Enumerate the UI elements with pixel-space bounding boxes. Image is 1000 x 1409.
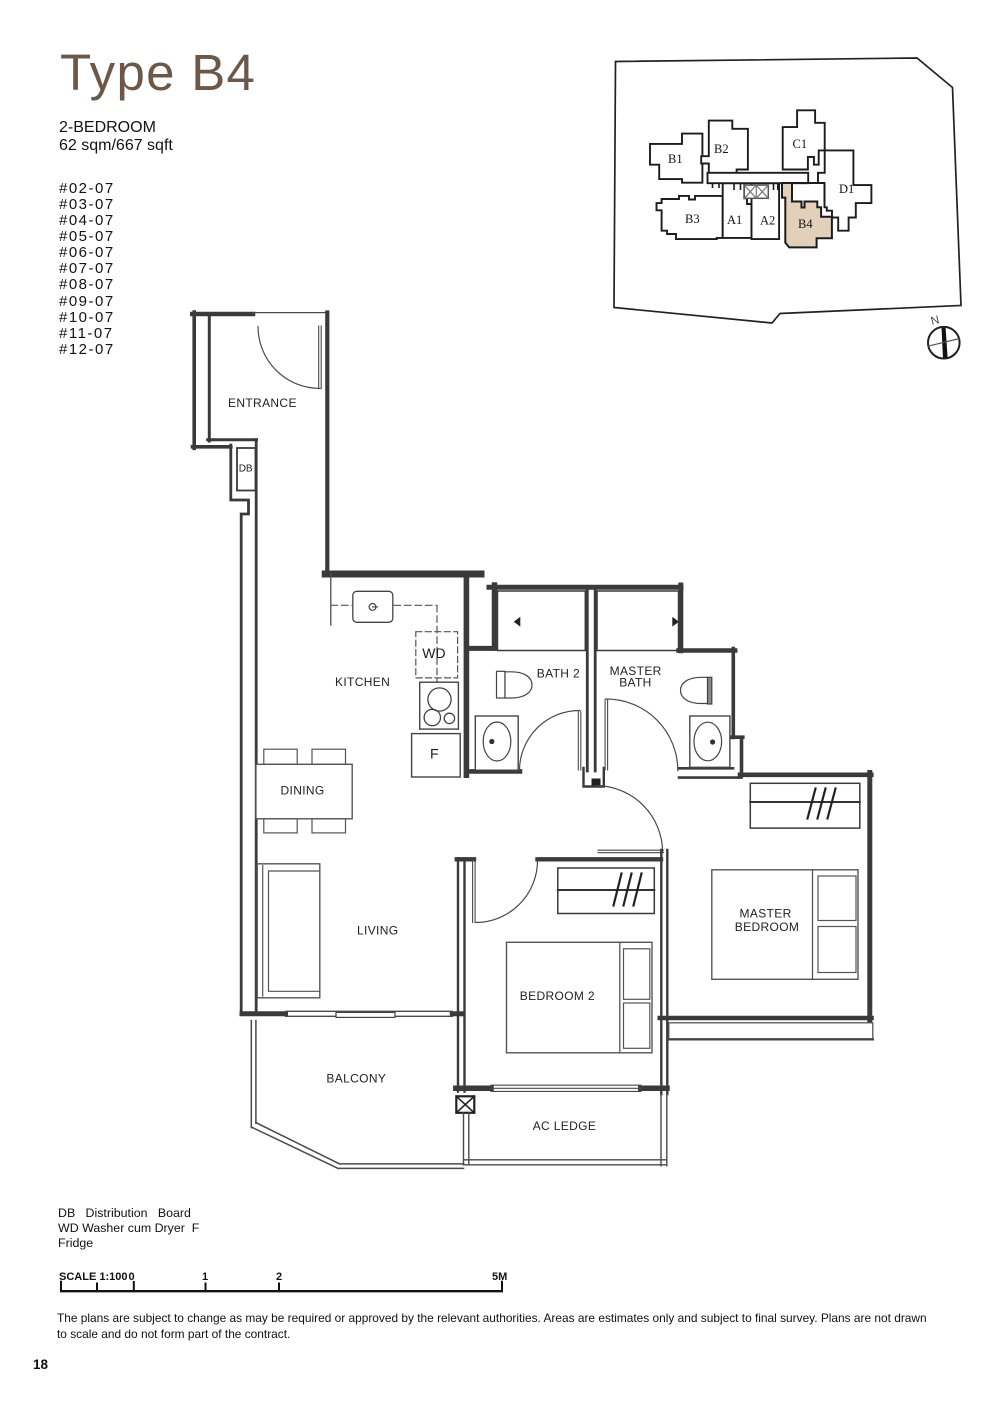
svg-text:BEDROOM 2: BEDROOM 2 [520, 989, 595, 1003]
svg-text:A1: A1 [727, 213, 742, 227]
svg-text:B4: B4 [798, 217, 813, 231]
svg-text:B2: B2 [714, 142, 729, 156]
svg-text:2: 2 [276, 1271, 282, 1283]
svg-text:1: 1 [202, 1271, 208, 1283]
svg-text:WD: WD [422, 645, 445, 661]
svg-text:ENTRANCE: ENTRANCE [228, 396, 297, 410]
svg-text:BEDROOM: BEDROOM [735, 920, 799, 934]
svg-text:LIVING: LIVING [357, 924, 398, 938]
svg-text:C1: C1 [793, 137, 808, 151]
svg-text:AC LEDGE: AC LEDGE [533, 1119, 597, 1133]
svg-text:F: F [430, 746, 439, 762]
svg-text:KITCHEN: KITCHEN [335, 675, 390, 689]
svg-text:MASTER: MASTER [740, 907, 792, 921]
svg-text:DINING: DINING [281, 784, 325, 798]
svg-text:BATH: BATH [619, 676, 652, 690]
svg-text:N: N [930, 314, 941, 328]
svg-text:D1: D1 [839, 182, 854, 196]
svg-text:A2: A2 [760, 214, 775, 228]
svg-text:BALCONY: BALCONY [326, 1072, 386, 1086]
svg-text:DB: DB [239, 464, 253, 475]
svg-text:SCALE 1:100: SCALE 1:100 [59, 1271, 127, 1283]
svg-text:B3: B3 [685, 212, 700, 226]
svg-text:B1: B1 [668, 152, 683, 166]
svg-text:5M: 5M [492, 1271, 507, 1283]
svg-text:BATH 2: BATH 2 [537, 667, 580, 681]
